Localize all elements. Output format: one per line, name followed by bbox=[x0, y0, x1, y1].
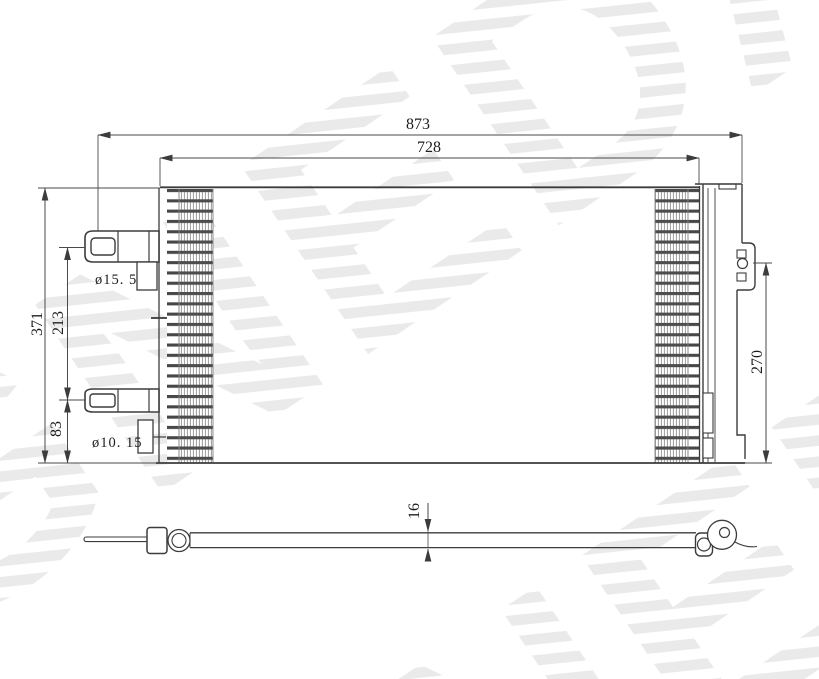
side-pipe-stub bbox=[84, 537, 148, 542]
side-connector-block bbox=[147, 528, 167, 554]
dim-label-371: 371 bbox=[29, 312, 46, 336]
dim-label-upper-port-dia: ø15. 5 bbox=[95, 272, 137, 288]
side-fitting-ring-outer bbox=[168, 530, 190, 552]
dim-label-270: 270 bbox=[749, 350, 766, 374]
upper-pipe-bracket bbox=[137, 262, 157, 290]
fin-band-left bbox=[179, 189, 213, 463]
dim-label-83: 83 bbox=[48, 421, 65, 437]
dim-label-728: 728 bbox=[417, 139, 441, 156]
tank-tab-upper bbox=[703, 393, 713, 433]
fin-band-right bbox=[655, 189, 688, 463]
drawing-svg: SIGNEDA SIGNEDA bbox=[0, 0, 819, 679]
dim-label-lower-port-dia: ø10. 15 bbox=[92, 435, 143, 451]
tube-teeth-left bbox=[167, 189, 179, 463]
side-drier-end-cap bbox=[708, 520, 737, 549]
dim-label-16: 16 bbox=[406, 503, 423, 519]
tube-teeth-right bbox=[688, 189, 700, 463]
dim-label-873: 873 bbox=[406, 116, 430, 133]
condenser-technical-drawing: SIGNEDA SIGNEDA bbox=[0, 0, 819, 679]
dim-label-213: 213 bbox=[50, 311, 67, 335]
tank-tab-lower bbox=[703, 438, 713, 458]
lower-pipe-fitting bbox=[85, 389, 159, 412]
upper-pipe-fitting bbox=[85, 231, 159, 262]
